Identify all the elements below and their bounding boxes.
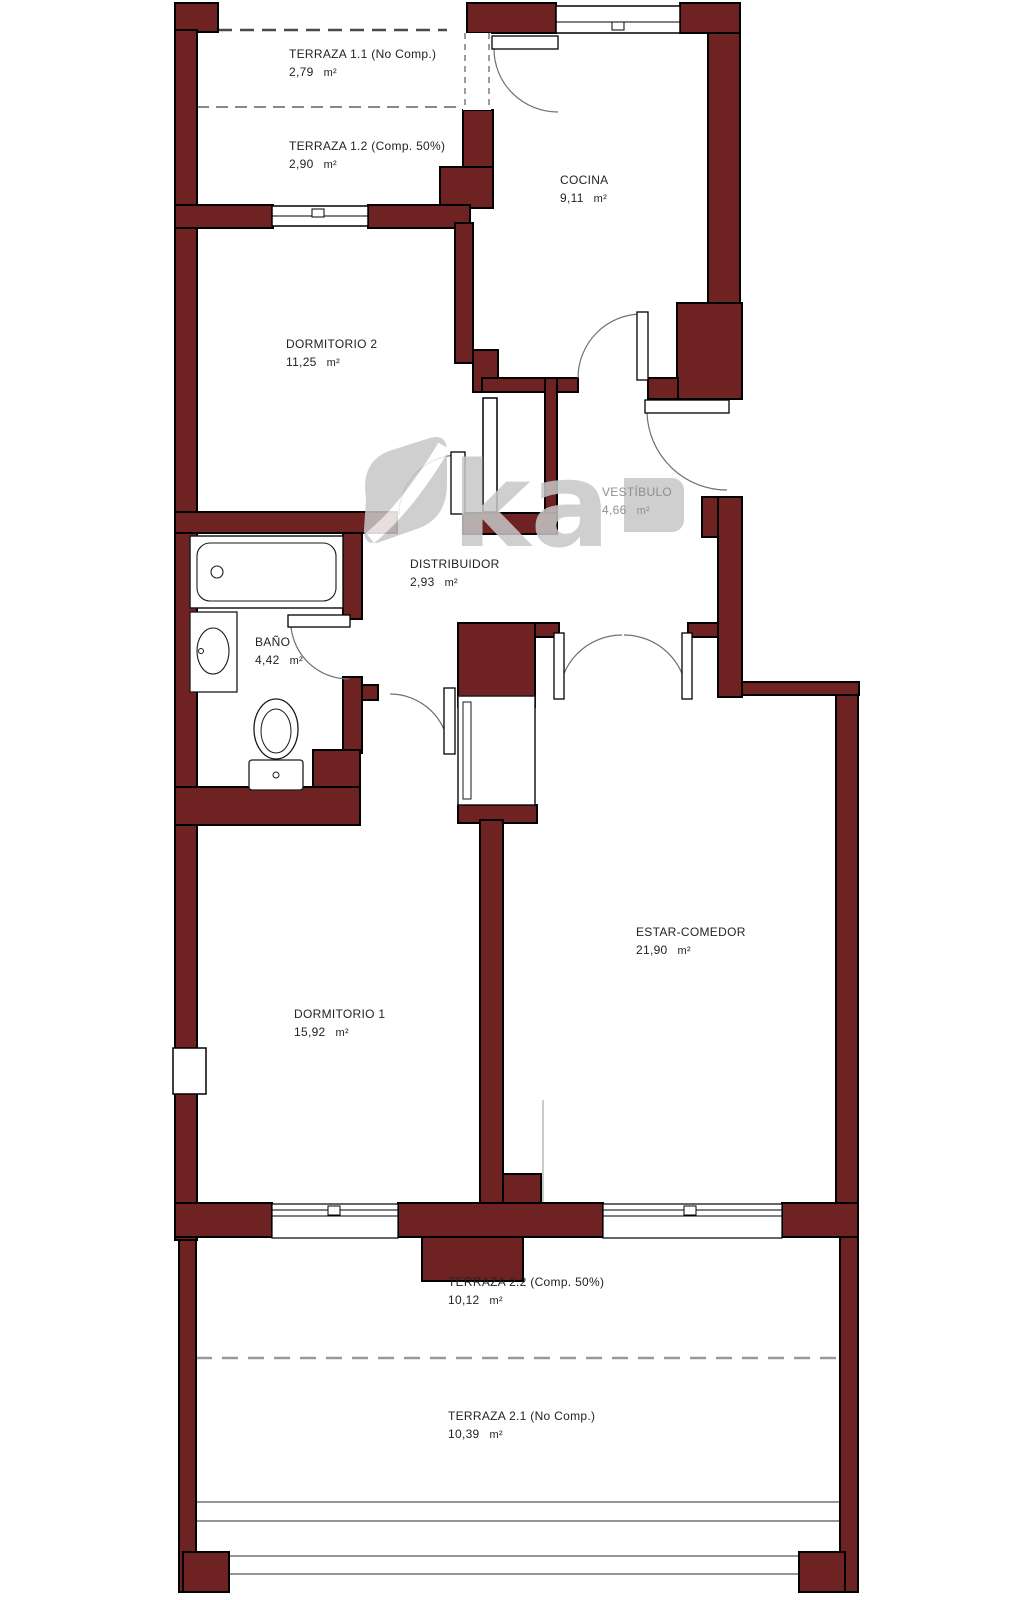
terrace-door-opening — [463, 33, 491, 110]
floor-plan-drawing — [0, 0, 1029, 1600]
room-label-terraza-2-1: TERRAZA 2.1 (No Comp.) 10,39m² — [448, 1408, 595, 1444]
door-leaf — [682, 633, 692, 699]
window — [603, 1204, 782, 1238]
wall — [313, 750, 360, 790]
window — [272, 1204, 398, 1238]
terrace-railing-lines — [196, 1502, 839, 1574]
wall — [175, 3, 218, 32]
wall — [503, 1174, 541, 1205]
door-leaf — [451, 452, 465, 514]
room-label-estar-comedor: ESTAR-COMEDOR 21,90m² — [636, 924, 746, 960]
wall — [362, 685, 378, 700]
wall-recess — [173, 1048, 206, 1094]
wardrobe-icon — [458, 696, 535, 805]
wall — [648, 378, 678, 399]
wall — [183, 1552, 229, 1592]
wall — [440, 167, 493, 208]
wall — [545, 378, 557, 534]
room-label-terraza-1-1: TERRAZA 1.1 (No Comp.) 2,79m² — [289, 46, 436, 82]
wall — [458, 623, 535, 707]
room-label-terraza-2-2: TERRAZA 2.2 (Comp. 50%) 10,12m² — [448, 1274, 604, 1310]
wall — [799, 1552, 845, 1592]
door-swing — [624, 635, 687, 698]
door-swing — [494, 49, 558, 112]
wall — [702, 497, 718, 537]
wall — [175, 205, 273, 228]
door-leaf — [492, 36, 558, 49]
window — [272, 206, 368, 226]
room-label-bano: BAÑO 4,42m² — [255, 634, 303, 670]
wall — [398, 1203, 603, 1237]
wall — [343, 677, 362, 753]
room-label-cocina: COCINA 9,11m² — [560, 172, 608, 208]
wall — [179, 1240, 196, 1592]
door-leaf — [444, 688, 455, 754]
wall — [742, 682, 859, 695]
wall — [467, 3, 556, 33]
wall — [175, 1203, 272, 1237]
shaft-partition — [483, 398, 497, 512]
wall — [836, 695, 858, 1205]
toilet-icon — [249, 699, 303, 790]
door-leaf — [288, 615, 350, 627]
room-label-distribuidor: DISTRIBUIDOR 2,93m² — [410, 556, 500, 592]
wall — [482, 378, 578, 392]
wall — [718, 497, 742, 697]
door-swing — [559, 635, 622, 698]
bathtub-icon — [190, 536, 343, 608]
room-label-vestibulo: VESTÍBULO 4,66m² — [602, 484, 672, 520]
door-swing — [390, 694, 449, 753]
floor-plan-page: ka TERRAZA 1.1 (No Comp.) 2,79m² TERRAZA… — [0, 0, 1029, 1600]
wall — [840, 1237, 858, 1592]
wall — [782, 1203, 858, 1237]
door-leaf — [645, 400, 729, 413]
wall — [463, 110, 493, 170]
wall — [343, 533, 362, 619]
room-label-terraza-1-2: TERRAZA 1.2 (Comp. 50%) 2,90m² — [289, 138, 445, 174]
door-swing — [647, 413, 727, 490]
wall — [463, 513, 557, 534]
wall — [680, 3, 740, 33]
wall — [708, 33, 740, 305]
door-swing — [578, 314, 642, 378]
wall — [175, 787, 360, 825]
room-label-dormitorio-2: DORMITORIO 2 11,25m² — [286, 336, 377, 372]
door-leaf — [637, 312, 648, 380]
wall — [677, 303, 742, 399]
door-leaf — [554, 633, 564, 699]
door-swing — [399, 455, 459, 515]
wall — [175, 512, 397, 533]
wall — [480, 820, 503, 1205]
room-label-dormitorio-1: DORMITORIO 1 15,92m² — [294, 1006, 385, 1042]
window — [556, 6, 680, 33]
washbasin-icon — [190, 612, 237, 692]
wall — [455, 223, 473, 363]
